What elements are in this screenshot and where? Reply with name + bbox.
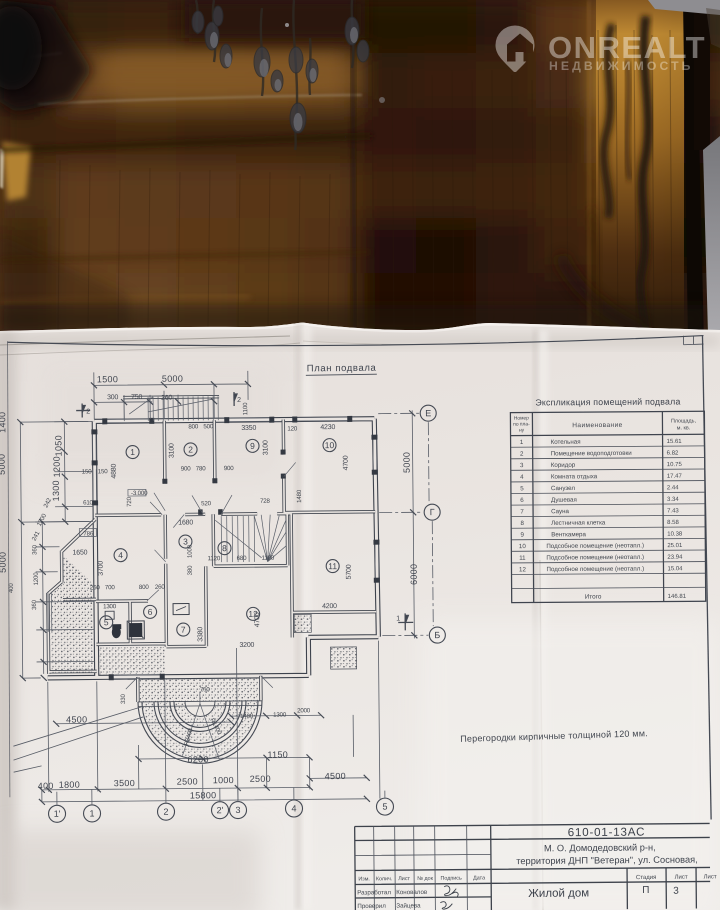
svg-text:300: 300 bbox=[107, 394, 118, 401]
svg-text:Г: Г bbox=[430, 507, 435, 517]
svg-text:146.81: 146.81 bbox=[668, 594, 687, 600]
svg-text:1100: 1100 bbox=[262, 555, 275, 562]
svg-text:Итого: Итого bbox=[585, 593, 602, 600]
svg-text:4200: 4200 bbox=[322, 603, 337, 610]
svg-text:4700: 4700 bbox=[343, 455, 350, 470]
svg-text:Жилой дом: Жилой дом bbox=[528, 887, 589, 900]
svg-text:520: 520 bbox=[201, 500, 212, 507]
svg-text:1300: 1300 bbox=[51, 480, 61, 501]
svg-text:ну: ну bbox=[519, 429, 525, 434]
svg-text:1050: 1050 bbox=[53, 435, 63, 456]
svg-text:1500: 1500 bbox=[97, 374, 118, 384]
svg-text:260: 260 bbox=[155, 584, 166, 591]
svg-text:3700: 3700 bbox=[98, 561, 105, 576]
svg-text:Площадь,: Площадь, bbox=[671, 418, 697, 424]
svg-text:3200: 3200 bbox=[239, 642, 254, 649]
svg-text:2000: 2000 bbox=[297, 707, 311, 714]
svg-text:1': 1' bbox=[54, 809, 61, 819]
svg-text:территория ДНП "Ветеран", ул.: территория ДНП "Ветеран", ул. Сосновая, bbox=[516, 855, 698, 867]
svg-text:НЕДВИЖИМОСТЬ: НЕДВИЖИМОСТЬ bbox=[549, 59, 693, 73]
svg-text:400: 400 bbox=[8, 583, 15, 594]
svg-text:1200: 1200 bbox=[33, 572, 40, 586]
svg-text:Подпись: Подпись bbox=[440, 876, 462, 882]
svg-text:728: 728 bbox=[260, 498, 271, 505]
svg-text:1: 1 bbox=[130, 447, 135, 457]
svg-text:500: 500 bbox=[203, 423, 214, 430]
svg-text:360: 360 bbox=[31, 599, 38, 610]
svg-text:Номер: Номер bbox=[514, 415, 529, 421]
svg-text:Подсобное помещение (неотапл.): Подсобное помещение (неотапл.) bbox=[546, 565, 644, 573]
svg-text:1650: 1650 bbox=[73, 549, 88, 556]
svg-text:4: 4 bbox=[291, 803, 296, 813]
svg-text:3: 3 bbox=[673, 886, 679, 897]
svg-text:4: 4 bbox=[520, 474, 524, 481]
svg-text:1: 1 bbox=[89, 808, 94, 818]
svg-text:750: 750 bbox=[131, 394, 142, 401]
svg-text:Наименование: Наименование bbox=[572, 422, 623, 429]
svg-text:360: 360 bbox=[31, 544, 38, 555]
svg-text:900: 900 bbox=[181, 465, 192, 472]
svg-text:Лист: Лист bbox=[675, 875, 688, 881]
svg-text:6200: 6200 bbox=[187, 754, 208, 764]
svg-text:3350: 3350 bbox=[241, 425, 256, 432]
svg-text:Проверил: Проверил bbox=[357, 903, 386, 910]
svg-text:380: 380 bbox=[187, 565, 194, 576]
svg-text:3500: 3500 bbox=[114, 778, 135, 788]
svg-text:750: 750 bbox=[200, 686, 211, 693]
svg-text:м. кв.: м. кв. bbox=[677, 425, 690, 431]
svg-text:6000: 6000 bbox=[409, 564, 419, 585]
svg-text:8: 8 bbox=[222, 543, 227, 553]
svg-text:4700: 4700 bbox=[254, 612, 261, 627]
svg-text:12: 12 bbox=[519, 566, 526, 573]
svg-text:900: 900 bbox=[224, 465, 235, 472]
svg-text:17.47: 17.47 bbox=[667, 474, 683, 480]
svg-text:Изм.: Изм. bbox=[358, 876, 370, 882]
svg-text:4: 4 bbox=[118, 550, 123, 560]
svg-text:15800: 15800 bbox=[190, 790, 217, 800]
svg-text:780: 780 bbox=[196, 465, 207, 472]
svg-text:7: 7 bbox=[181, 625, 186, 635]
svg-text:120: 120 bbox=[287, 425, 298, 432]
svg-text:3100: 3100 bbox=[168, 443, 175, 458]
svg-text:10.75: 10.75 bbox=[667, 462, 683, 468]
svg-text:5: 5 bbox=[382, 802, 387, 812]
svg-text:2500: 2500 bbox=[177, 776, 198, 786]
svg-text:6.82: 6.82 bbox=[667, 451, 679, 457]
svg-text:Подсобное помещение (неотапл.): Подсобное помещение (неотапл.) bbox=[546, 542, 644, 550]
svg-text:Экспликация помещений подвала: Экспликация помещений подвала bbox=[535, 396, 680, 407]
svg-text:2: 2 bbox=[520, 451, 524, 458]
svg-text:1680: 1680 bbox=[178, 519, 193, 526]
svg-text:№ док: № док bbox=[417, 876, 433, 882]
svg-text:4880: 4880 bbox=[111, 463, 118, 478]
svg-text:6: 6 bbox=[520, 497, 524, 504]
svg-text:П: П bbox=[642, 885, 649, 896]
svg-text:800: 800 bbox=[139, 584, 150, 591]
svg-text:7: 7 bbox=[520, 508, 524, 515]
svg-text:Коновалов: Коновалов bbox=[396, 889, 428, 896]
svg-text:5: 5 bbox=[104, 617, 109, 627]
svg-text:Б: Б bbox=[434, 630, 440, 640]
svg-text:8: 8 bbox=[520, 520, 524, 527]
svg-text:Подсобное помещение (неотапл.): Подсобное помещение (неотапл.) bbox=[546, 554, 644, 562]
svg-text:Дата: Дата bbox=[473, 875, 485, 881]
svg-text:5000: 5000 bbox=[0, 454, 7, 475]
svg-text:1000: 1000 bbox=[213, 775, 234, 785]
svg-text:25.01: 25.01 bbox=[667, 543, 683, 549]
svg-text:5000: 5000 bbox=[162, 374, 183, 384]
svg-text:400: 400 bbox=[38, 781, 54, 791]
svg-text:2: 2 bbox=[188, 444, 193, 454]
svg-text:6: 6 bbox=[148, 607, 153, 617]
svg-text:11: 11 bbox=[328, 561, 337, 571]
svg-text:5000: 5000 bbox=[0, 552, 8, 573]
svg-text:по пла-: по пла- bbox=[513, 422, 530, 427]
svg-text:680: 680 bbox=[237, 555, 248, 562]
svg-text:2': 2' bbox=[217, 805, 224, 815]
svg-text:2.44: 2.44 bbox=[667, 485, 679, 491]
svg-text:2500: 2500 bbox=[250, 774, 271, 784]
svg-text:9: 9 bbox=[250, 441, 255, 451]
svg-text:700: 700 bbox=[105, 584, 116, 591]
svg-text:610-01-13АС: 610-01-13АС bbox=[568, 825, 646, 839]
svg-text:Санузел: Санузел bbox=[551, 485, 576, 492]
svg-text:15.04: 15.04 bbox=[667, 566, 683, 572]
svg-text:Комната отдыха: Комната отдыха bbox=[551, 473, 598, 480]
svg-text:Сауна: Сауна bbox=[551, 508, 569, 515]
svg-text:260: 260 bbox=[161, 395, 172, 402]
svg-text:5: 5 bbox=[520, 485, 524, 492]
svg-text:8.58: 8.58 bbox=[667, 520, 679, 526]
svg-text:2: 2 bbox=[163, 807, 168, 817]
svg-text:3: 3 bbox=[235, 805, 240, 815]
svg-text:15.61: 15.61 bbox=[667, 439, 683, 445]
svg-text:2: 2 bbox=[237, 397, 241, 404]
svg-text:Лист: Лист bbox=[398, 876, 410, 882]
svg-text:720: 720 bbox=[126, 496, 133, 507]
svg-text:Душевая: Душевая bbox=[551, 497, 577, 504]
svg-text:10.38: 10.38 bbox=[667, 532, 683, 538]
svg-text:260: 260 bbox=[90, 584, 101, 591]
svg-text:330: 330 bbox=[120, 693, 127, 704]
svg-text:800: 800 bbox=[188, 423, 199, 430]
svg-text:Лестничная клетка: Лестничная клетка bbox=[551, 519, 606, 526]
svg-text:М. О. Домодедовский р-н,: М. О. Домодедовский р-н, bbox=[544, 842, 656, 853]
svg-text:10: 10 bbox=[325, 440, 335, 450]
svg-text:4500: 4500 bbox=[66, 714, 87, 724]
svg-text:Коридор: Коридор bbox=[551, 462, 576, 469]
svg-text:1100: 1100 bbox=[242, 402, 249, 415]
svg-text:2: 2 bbox=[86, 408, 90, 415]
svg-text:Венткамера: Венткамера bbox=[551, 531, 586, 538]
svg-text:4500: 4500 bbox=[325, 771, 346, 781]
svg-text:150: 150 bbox=[98, 468, 109, 475]
svg-text:150: 150 bbox=[82, 468, 93, 475]
svg-text:1480: 1480 bbox=[296, 489, 303, 503]
svg-text:Зайцева: Зайцева bbox=[396, 902, 421, 909]
svg-text:Помещение водоподготовки: Помещение водоподготовки bbox=[551, 450, 633, 458]
svg-text:23.94: 23.94 bbox=[667, 555, 683, 561]
svg-text:1: 1 bbox=[396, 615, 400, 622]
svg-text:Е: Е bbox=[425, 408, 431, 418]
svg-text:1200: 1200 bbox=[52, 456, 62, 477]
svg-text:11: 11 bbox=[519, 555, 526, 562]
svg-text:3380: 3380 bbox=[197, 627, 204, 642]
svg-text:1300: 1300 bbox=[273, 712, 287, 719]
svg-text:1400: 1400 bbox=[240, 713, 254, 720]
svg-text:7.43: 7.43 bbox=[667, 508, 679, 514]
svg-text:1: 1 bbox=[520, 439, 524, 446]
svg-text:Стадия: Стадия bbox=[636, 875, 657, 881]
svg-text:1800: 1800 bbox=[59, 780, 80, 790]
svg-text:1400: 1400 bbox=[0, 412, 7, 433]
svg-text:Лист: Лист bbox=[704, 874, 717, 880]
svg-text:4230: 4230 bbox=[320, 424, 335, 431]
svg-text:5000: 5000 bbox=[402, 452, 412, 473]
svg-text:1300: 1300 bbox=[103, 603, 117, 610]
svg-text:3100: 3100 bbox=[262, 440, 269, 455]
svg-text:5700: 5700 bbox=[346, 564, 353, 579]
svg-text:1000: 1000 bbox=[186, 544, 193, 558]
svg-text:Колич.: Колич. bbox=[376, 876, 393, 882]
svg-text:Котельная: Котельная bbox=[551, 439, 581, 446]
svg-text:3: 3 bbox=[520, 462, 524, 469]
svg-text:3.34: 3.34 bbox=[667, 497, 679, 503]
svg-text:1120: 1120 bbox=[208, 555, 221, 562]
svg-text:Разработал: Разработал bbox=[357, 889, 391, 896]
svg-text:1150: 1150 bbox=[267, 750, 288, 760]
svg-text:610: 610 bbox=[83, 499, 94, 506]
svg-text:9: 9 bbox=[520, 532, 524, 539]
svg-text:10: 10 bbox=[519, 543, 526, 550]
svg-text:План подвала: План подвала bbox=[307, 363, 377, 375]
